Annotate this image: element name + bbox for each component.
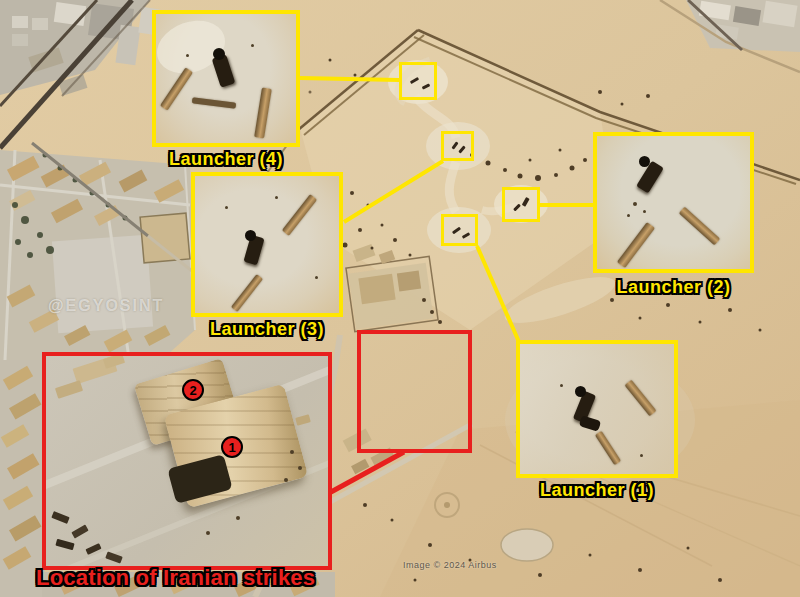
launcher-2-label: Launcher (2) xyxy=(593,277,754,298)
strike-marker-1: 1 xyxy=(221,436,243,458)
launcher-1-inset xyxy=(516,340,678,478)
strike-marker-2: 2 xyxy=(182,379,204,401)
strike-location-label: Location of Iranian strikes xyxy=(36,565,315,591)
launcher-1-label: Launcher (1) xyxy=(516,480,678,501)
target-box-launcher-4 xyxy=(399,62,437,100)
strike-marker-1-number: 1 xyxy=(228,440,235,455)
launcher-3-label: Launcher (3) xyxy=(191,319,343,340)
launcher-2-inset xyxy=(593,132,754,273)
target-box-launcher-2 xyxy=(502,187,540,222)
target-box-launcher-1 xyxy=(441,214,478,246)
imagery-credit-watermark: Image © 2024 Airbus xyxy=(403,560,497,570)
annotated-satellite-image: 2 1 Launcher (4) Launcher (3) Launcher (… xyxy=(0,0,800,597)
urban-area-left xyxy=(0,150,195,370)
launcher-3-inset xyxy=(191,172,343,317)
launcher-4-label: Launcher (4) xyxy=(152,149,300,170)
strike-location-box xyxy=(357,330,472,453)
launcher-4-inset xyxy=(152,10,300,147)
target-box-launcher-3 xyxy=(441,131,474,161)
strike-marker-2-number: 2 xyxy=(189,383,196,398)
egyosint-watermark: @EGYOSINT xyxy=(48,297,164,315)
